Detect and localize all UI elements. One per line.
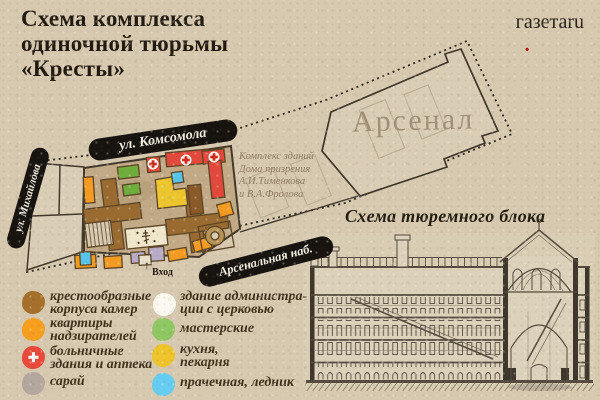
gazeta-ru-logo: газета.ru	[516, 11, 584, 34]
prison-block-section-drawing	[303, 219, 595, 391]
legend-label-cell-blocks: крестообразныекорпуса камер	[50, 291, 151, 316]
entrance-label: Вход	[152, 267, 173, 278]
entrance-arrow-icon: ↑	[144, 258, 150, 273]
page-title: Схема комплекса одиночной тюрьмы «Кресты…	[21, 6, 228, 81]
logo-dot: .	[516, 34, 539, 57]
section-drawing-title: Схема тюремного блока	[345, 206, 545, 227]
dom-prizreniya-caption: Комплекс зданий Дома призрения А.И.Тимен…	[239, 151, 314, 201]
legend-label-laundry: прачечная, ледник	[180, 377, 294, 390]
legend-label-kitchen: кухня,пекарня	[180, 344, 230, 369]
infographic: Схема комплекса одиночной тюрьмы «Кресты…	[0, 0, 600, 400]
legend-label-administration: здание администра-ции с церковью	[180, 291, 307, 316]
legend-label-warders-quarters: квартирынадзирателей	[50, 318, 137, 343]
administration-church-building	[125, 225, 168, 249]
legend-label-workshops: мастерские	[180, 323, 254, 336]
legend-label-hospital: больничныездания и аптека	[50, 346, 152, 371]
arsenal-area-label: Арсенал	[352, 102, 475, 139]
legend-label-shed: сарай	[50, 376, 85, 389]
red-cross-icon: ✚	[28, 351, 39, 364]
